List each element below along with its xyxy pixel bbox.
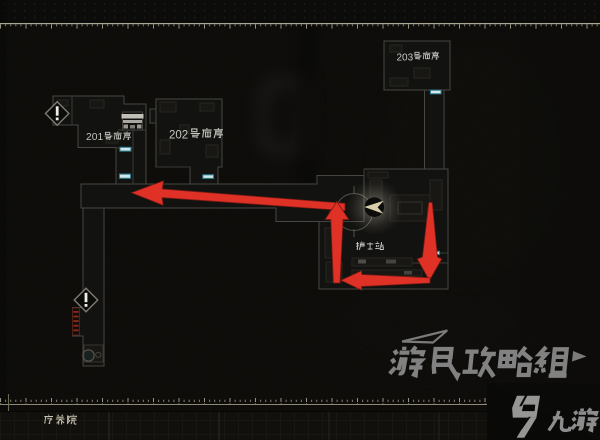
- svg-text:203: 203: [397, 53, 414, 64]
- svg-text:201: 201: [86, 132, 103, 143]
- svg-text:202: 202: [169, 130, 188, 142]
